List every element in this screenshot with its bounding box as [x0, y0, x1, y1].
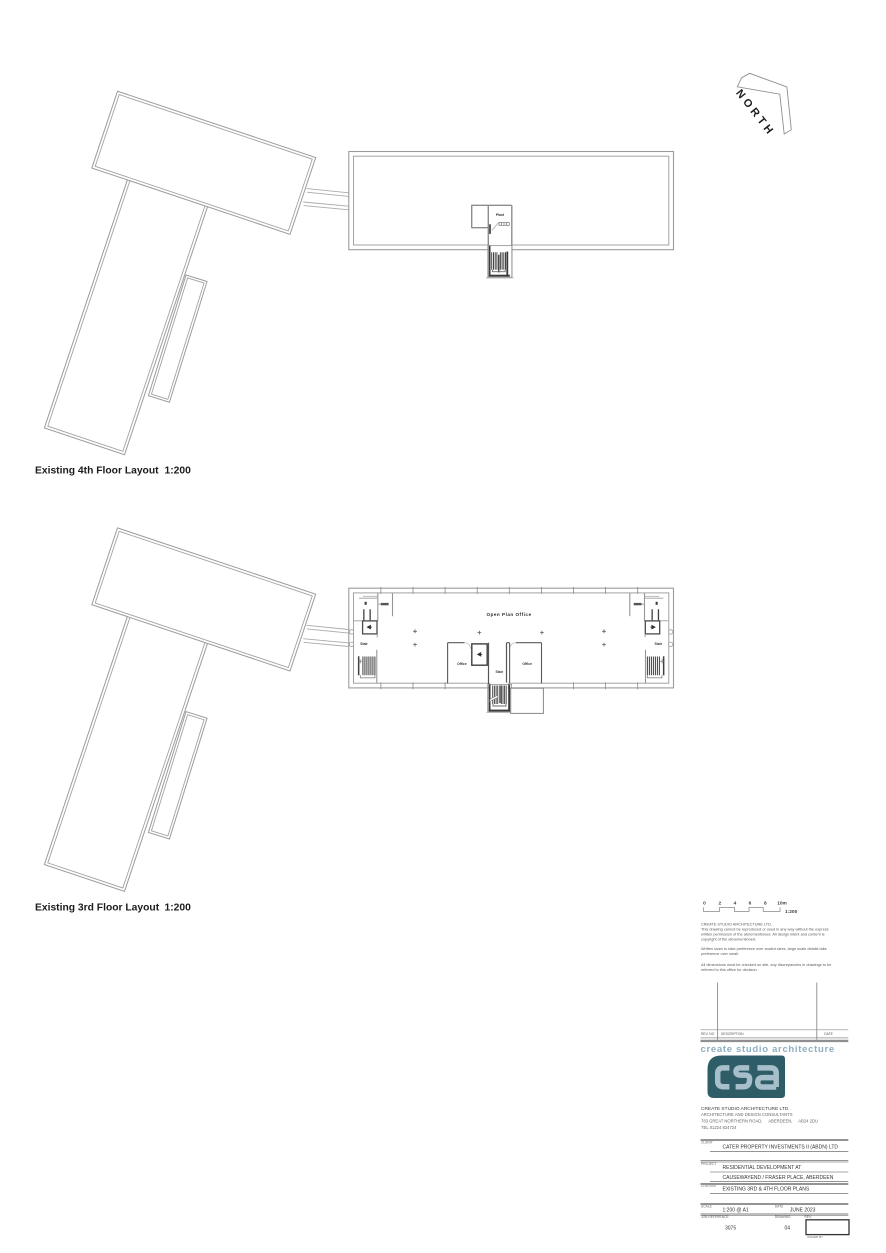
svg-text:DRAWING: DRAWING [775, 1215, 791, 1219]
svg-text:REV. NO: REV. NO [701, 1032, 715, 1036]
svg-text:written permission of the afor: written permission of the aforementioned… [701, 933, 825, 937]
svg-text:1:200: 1:200 [785, 909, 798, 915]
svg-text:1:200 @ A1: 1:200 @ A1 [723, 1208, 749, 1214]
svg-text:CREATE STUDIO ARCHITECTURE LTD: CREATE STUDIO ARCHITECTURE LTD. [701, 1106, 790, 1112]
svg-text:Office: Office [522, 662, 532, 666]
svg-text:4: 4 [734, 901, 737, 907]
svg-text:1:200: 1:200 [165, 466, 192, 477]
svg-text:Existing 4th Floor Layout: Existing 4th Floor Layout [35, 466, 159, 477]
svg-text:SCALE: SCALE [701, 1205, 713, 1209]
svg-text:Existing 3rd Floor Layout: Existing 3rd Floor Layout [35, 903, 160, 914]
svg-text:1:200: 1:200 [165, 903, 192, 914]
svg-text:RESIDENTIAL DEVELOPMENT AT: RESIDENTIAL DEVELOPMENT AT [723, 1165, 802, 1171]
svg-text:10m: 10m [777, 901, 787, 907]
svg-text:8: 8 [764, 901, 767, 907]
svg-text:CATER PROPERTY INVESTMENTS II: CATER PROPERTY INVESTMENTS II (ABDN) LTD [723, 1145, 839, 1151]
svg-text:Office: Office [457, 662, 467, 666]
svg-text:Stair: Stair [496, 670, 504, 674]
svg-text:3075: 3075 [725, 1225, 736, 1231]
svg-text:JOB REFERENCE: JOB REFERENCE [701, 1215, 729, 1219]
svg-text:Stair: Stair [360, 642, 368, 646]
svg-text:TEL 01224 824724: TEL 01224 824724 [701, 1125, 737, 1130]
svg-text:Open Plan Office: Open Plan Office [486, 612, 531, 617]
svg-text:JUNE 2023: JUNE 2023 [790, 1208, 816, 1214]
svg-text:ARCHITECTURE AND DESIGN CONSUL: ARCHITECTURE AND DESIGN CONSULTANTS [701, 1112, 793, 1117]
svg-text:CONTENT: CONTENT [701, 1184, 717, 1188]
svg-text:2: 2 [718, 901, 721, 907]
svg-text:DESCRIPTION: DESCRIPTION [721, 1032, 744, 1036]
svg-text:NORTH: NORTH [733, 87, 777, 139]
svg-text:CAUSEWAYEND / FRASER PLACE, AB: CAUSEWAYEND / FRASER PLACE, ABERDEEN [723, 1175, 834, 1181]
svg-text:This drawing cannot be reprodu: This drawing cannot be reproduced or use… [701, 928, 829, 932]
svg-text:CLIENT: CLIENT [701, 1141, 713, 1145]
svg-text:04: 04 [785, 1225, 791, 1231]
svg-text:referred to this office for de: referred to this office for decision. [701, 968, 758, 972]
svg-text:Written sizes to take preferen: Written sizes to take preference over sc… [701, 947, 827, 951]
svg-text:DATE: DATE [775, 1205, 784, 1209]
svg-text:ISSUED BY: ISSUED BY [807, 1235, 823, 1239]
svg-text:0: 0 [703, 901, 706, 907]
svg-text:DATE: DATE [824, 1032, 833, 1036]
svg-text:preference over small.: preference over small. [701, 952, 739, 956]
svg-text:All dimensions must be checked: All dimensions must be checked on site, … [701, 963, 831, 967]
svg-text:EXISTING 3RD & 4TH FLOOR PLANS: EXISTING 3RD & 4TH FLOOR PLANS [723, 1187, 810, 1193]
svg-text:CREATE STUDIO ARCHITECTURE LTD: CREATE STUDIO ARCHITECTURE LTD. [701, 923, 772, 927]
svg-text:copyright of the aforementione: copyright of the aforementioned. [701, 938, 756, 942]
svg-text:Stair: Stair [655, 642, 663, 646]
svg-text:create studio architecture: create studio architecture [701, 1044, 835, 1055]
svg-text:Plant: Plant [496, 213, 505, 217]
svg-text:6: 6 [749, 901, 752, 907]
svg-text:PROJECT: PROJECT [701, 1162, 716, 1166]
svg-text:REV.: REV. [805, 1215, 813, 1219]
svg-text:783 GREAT NORTHERN ROAD, A: 783 GREAT NORTHERN ROAD, ABERDEEN, AB24 … [701, 1119, 818, 1124]
